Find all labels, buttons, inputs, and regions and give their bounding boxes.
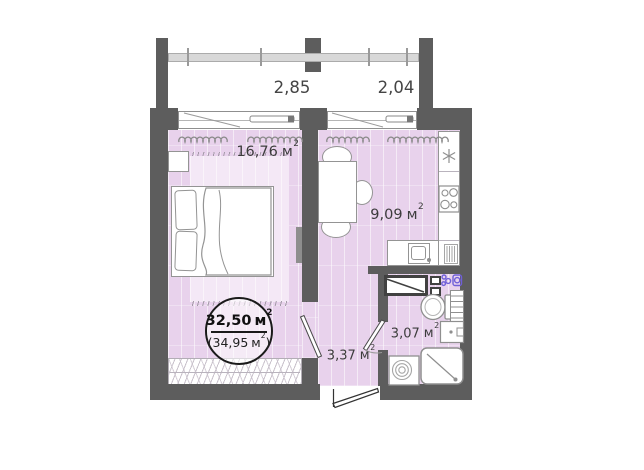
balcony-dimension-right: 2,04 bbox=[366, 78, 426, 97]
bedroom-door-leaf bbox=[301, 316, 322, 358]
balcony-dimension-left: 2,85 bbox=[262, 78, 322, 97]
badge-divider bbox=[211, 331, 267, 333]
total-area-main: 32,50м2 bbox=[206, 312, 273, 329]
floor-plan: 2,85 2,04 16,76м2 9,09м2 3,37м2 3,07м2 3… bbox=[0, 0, 644, 470]
window-sash-cap bbox=[407, 116, 413, 123]
details-layer bbox=[0, 0, 644, 470]
window-sash-cap bbox=[288, 116, 294, 123]
kitchen-area-label: 9,09м2 bbox=[364, 206, 430, 223]
entrance-door-leaf bbox=[333, 389, 379, 408]
window-sash bbox=[250, 116, 294, 122]
bathroom-area-label: 3,07м2 bbox=[387, 325, 443, 341]
hallway-area-label: 3,37м2 bbox=[322, 347, 380, 363]
cabinet-lid-line bbox=[387, 279, 425, 292]
window-opening-line bbox=[332, 113, 383, 127]
total-area-badge: 32,50м2 (34,95м2) bbox=[205, 297, 273, 365]
total-area-secondary: (34,95м2) bbox=[208, 335, 271, 350]
blanket bbox=[202, 188, 271, 275]
bedroom-area-label: 16,76м2 bbox=[213, 143, 299, 160]
window-opening-line bbox=[184, 113, 240, 127]
